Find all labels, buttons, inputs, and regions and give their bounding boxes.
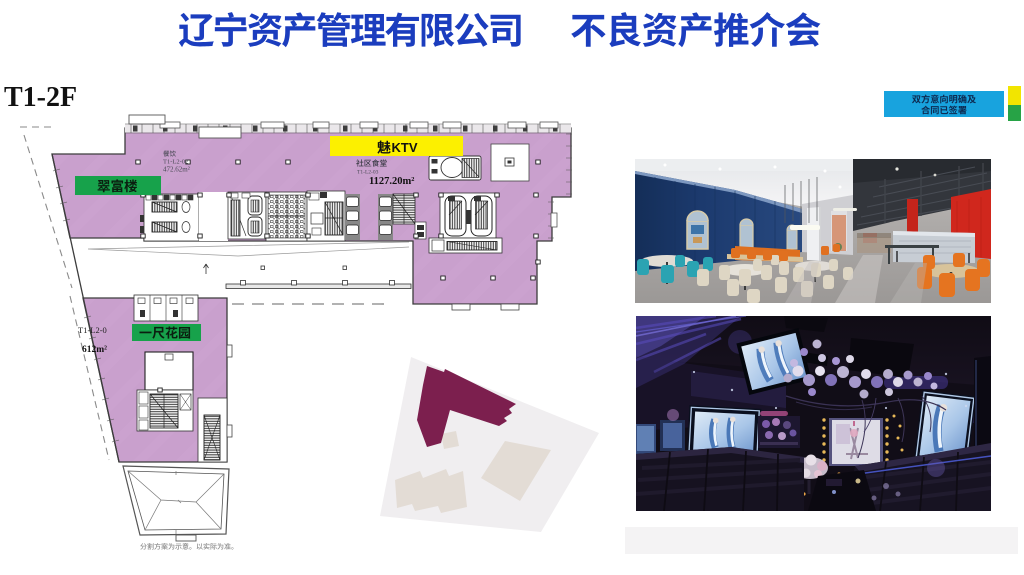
svg-text:KTV: KTV (392, 140, 418, 155)
svg-text:T1-L2-0: T1-L2-0 (78, 325, 107, 335)
svg-text:T1-L2-03: T1-L2-03 (357, 170, 379, 176)
svg-text:472.62m²: 472.62m² (163, 166, 190, 174)
svg-text:1127.20m²: 1127.20m² (369, 176, 414, 187)
svg-text:612m²: 612m² (82, 345, 107, 355)
svg-text:T1-L2-02: T1-L2-02 (163, 159, 188, 166)
